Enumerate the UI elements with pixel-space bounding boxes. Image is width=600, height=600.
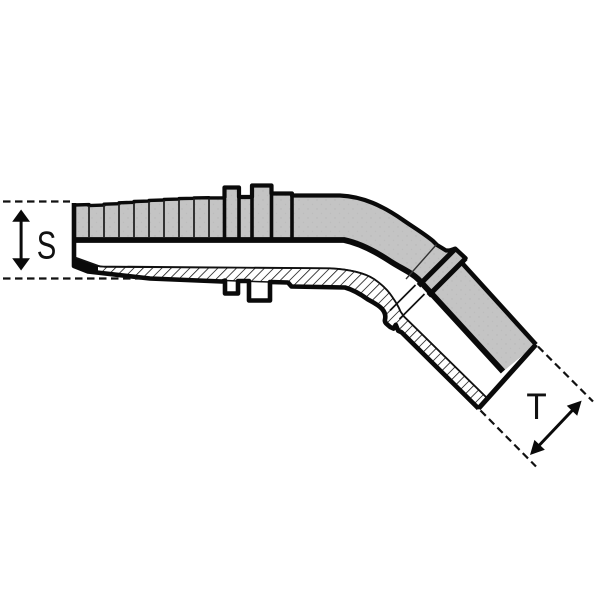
svg-text:T: T (526, 386, 546, 427)
svg-text:S: S (37, 225, 57, 268)
